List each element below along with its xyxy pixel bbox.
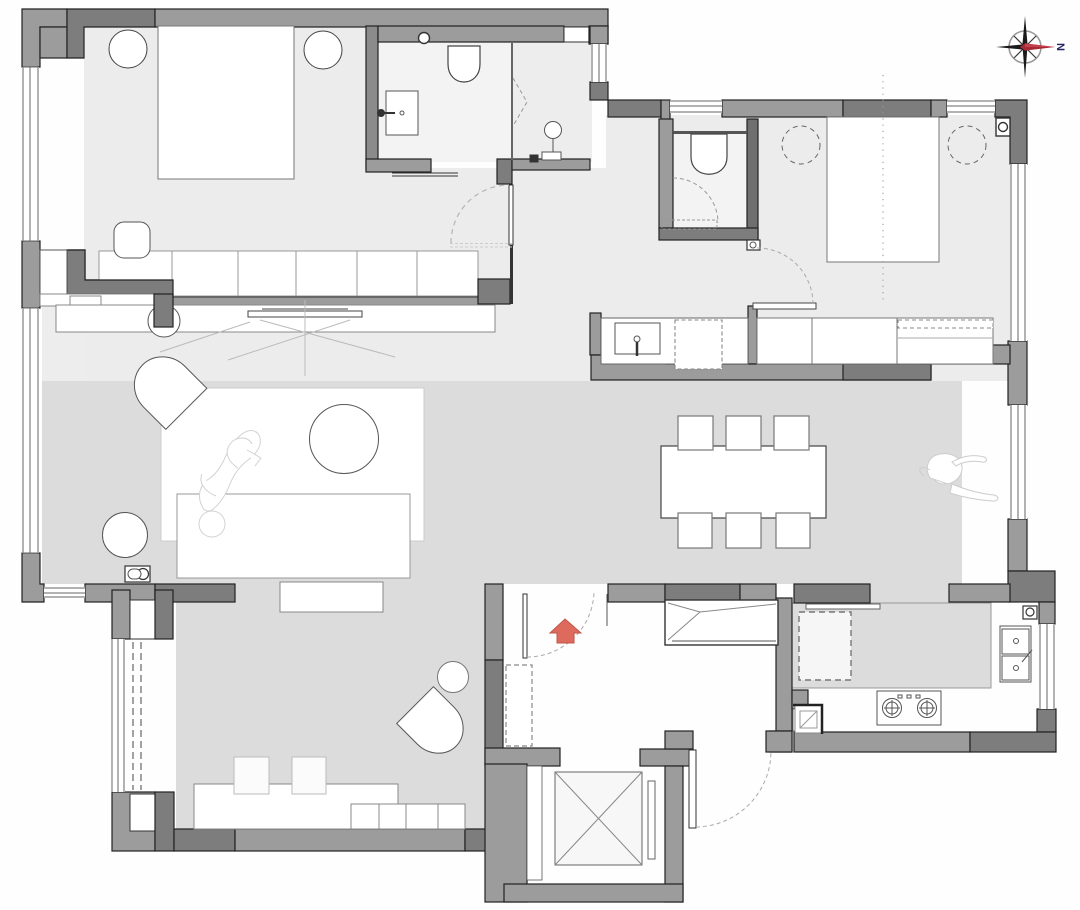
svg-text:N: N (1054, 43, 1066, 51)
